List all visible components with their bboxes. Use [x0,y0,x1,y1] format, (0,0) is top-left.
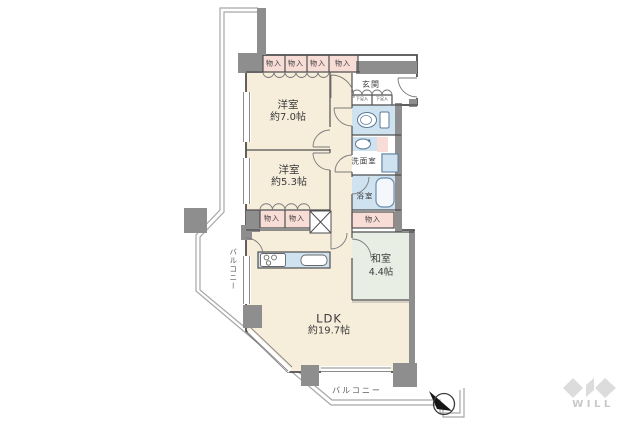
closet-label: 物入 [365,216,381,225]
washbasin-icon [356,139,371,149]
room-label-ldk: LDK 約19.7帖 [308,312,350,339]
closet-label: 物入 [266,60,282,69]
stove-icon [261,254,286,267]
floor-plan: 洋室 約7.0帖 洋室 約5.3帖 和室 4.4帖 LDK 約19.7帖 玄関 … [0,0,640,427]
shoe-closet-label: 下足入 [356,97,368,102]
room-label-western-7: 洋室 約7.0帖 [270,99,306,125]
washroom-label: 洗面室 [351,156,377,165]
balcony-bottom-label: バルコニー [332,386,382,396]
closet-label: 物入 [335,60,351,69]
closet-label: 物入 [289,215,305,224]
room-label-western-5: 洋室 約5.3帖 [271,164,307,190]
kitchen-sink-icon [301,255,327,266]
toilet-icon [358,112,390,128]
bathtub-icon [376,178,394,207]
north-arrow-icon [429,391,455,415]
entrance-label: 玄関 [362,80,380,90]
washing-machine-icon [382,154,398,172]
shaft-x-box [310,211,331,233]
room-label-japanese: 和室 4.4帖 [369,254,394,278]
closet-label: 物入 [310,60,326,69]
closet-label: 物入 [264,215,280,224]
shoe-closet-label: 下足入 [376,97,388,102]
will-logo-text: WILL [572,399,614,412]
closet-label: 物入 [288,60,304,69]
bathroom-label: 浴室 [357,191,374,200]
will-logo-mark [563,378,616,398]
balcony-left-label: バルコニー [228,248,237,291]
